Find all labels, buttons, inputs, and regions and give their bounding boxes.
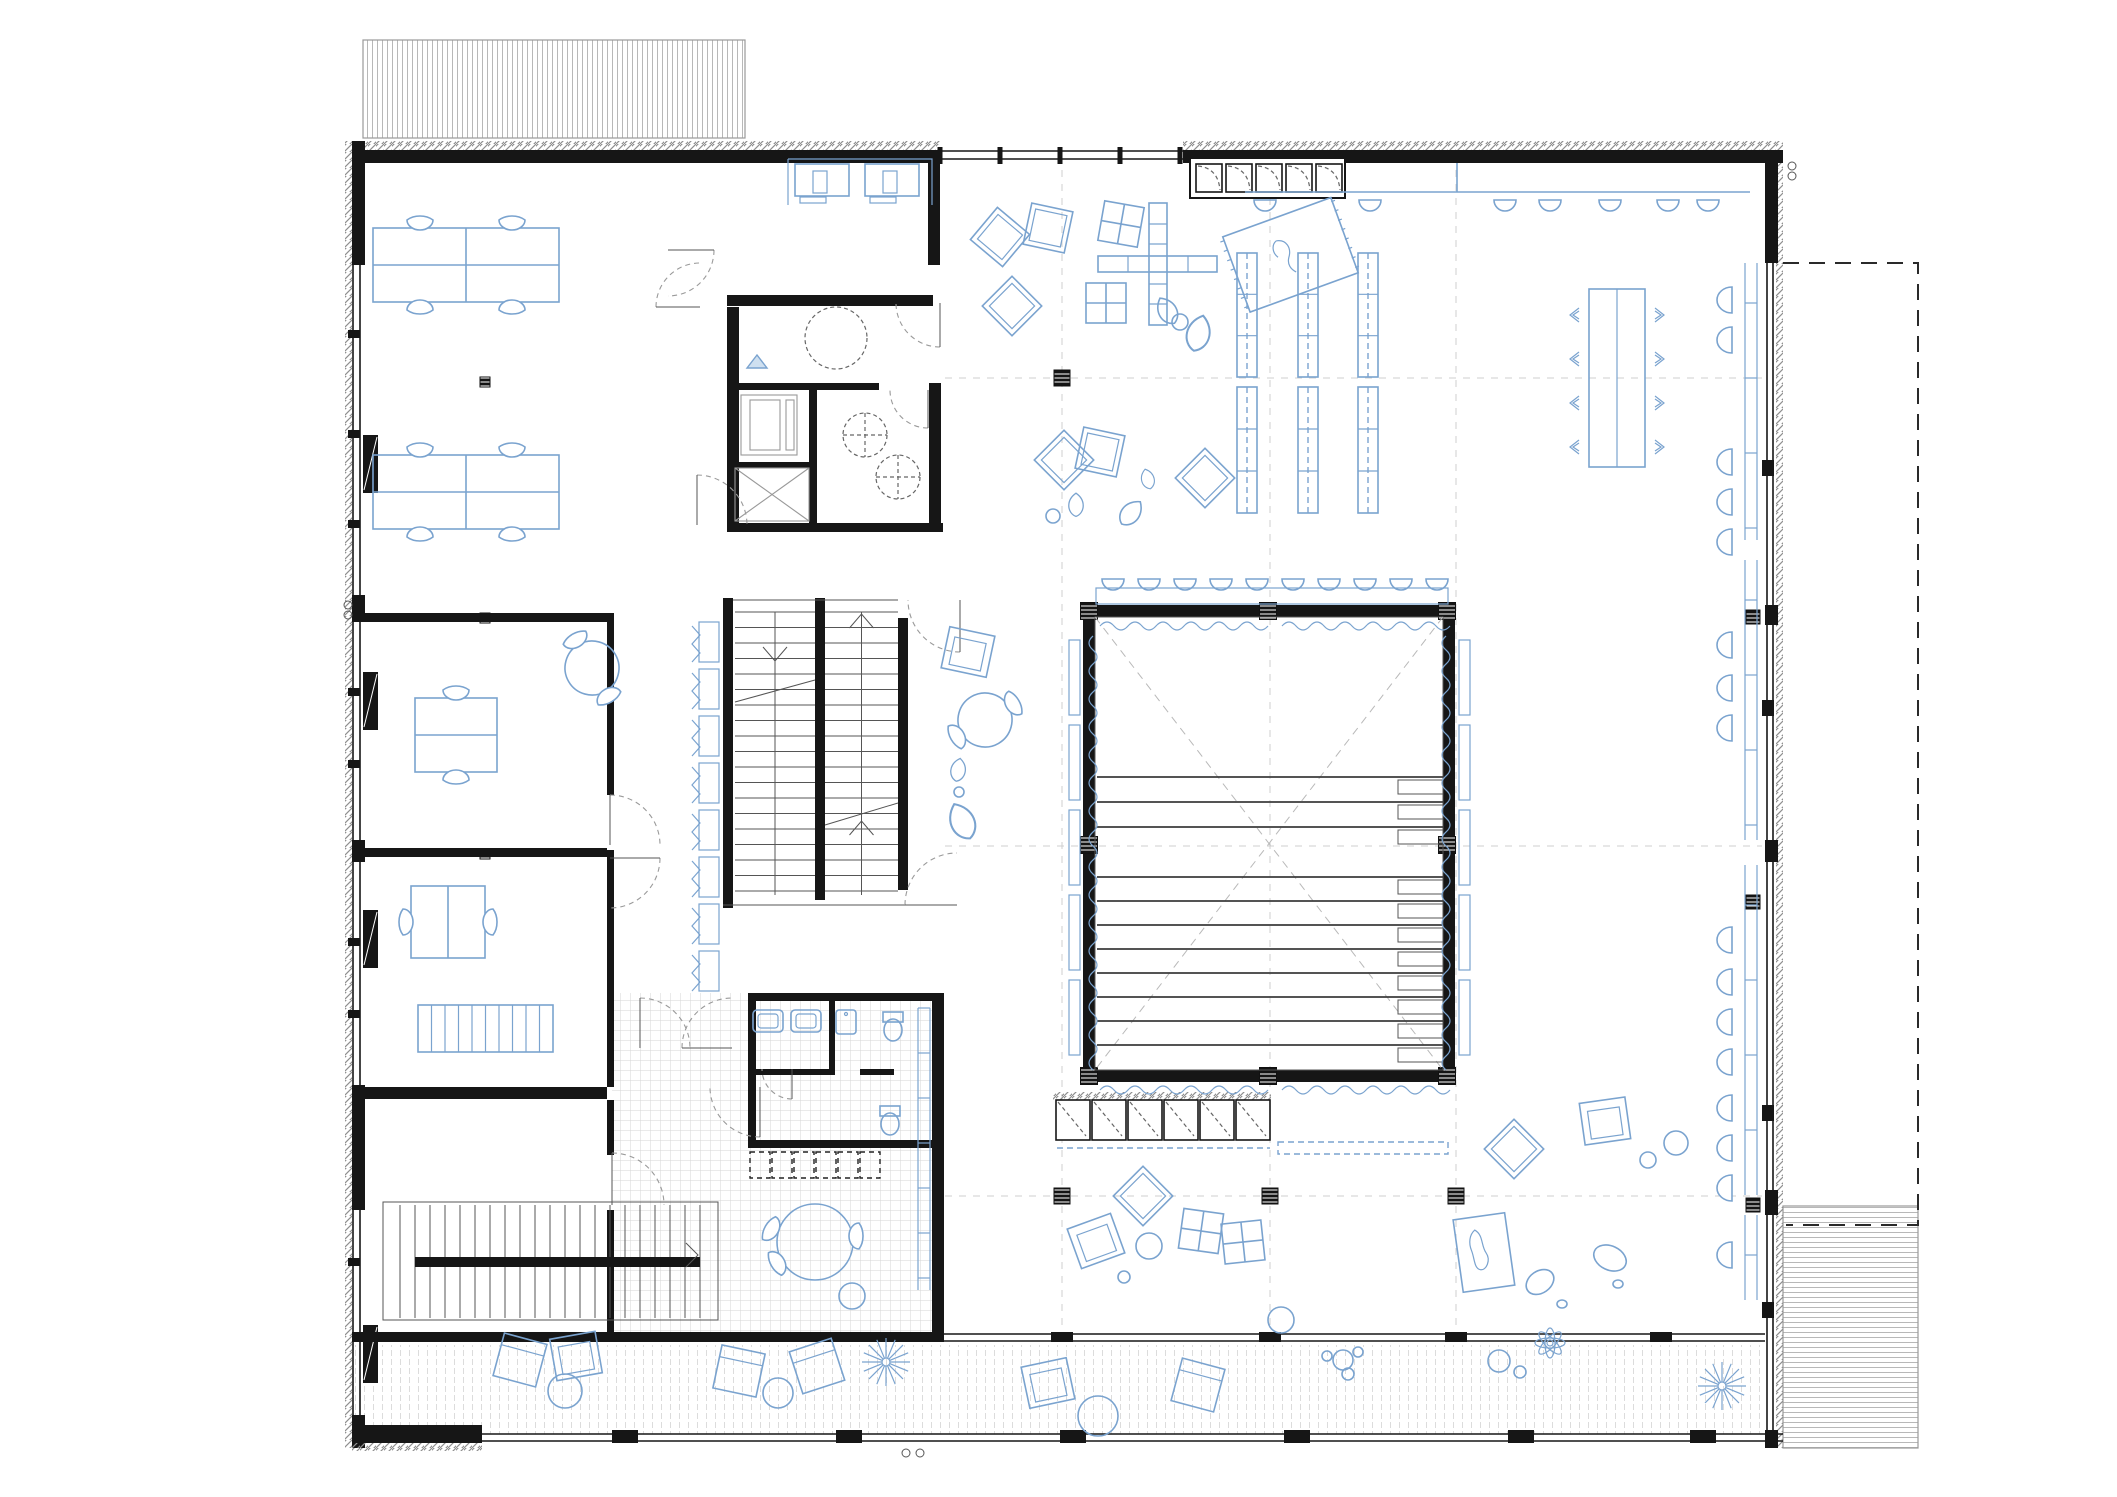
acoustic-panel	[1069, 895, 1080, 970]
zone-meeting-room-b	[363, 858, 613, 1087]
zone-terrace-south	[352, 1345, 1765, 1437]
acoustic-panel	[1459, 725, 1470, 800]
zone-elevator-core	[727, 383, 817, 530]
acoustic-panel	[1459, 895, 1470, 970]
locker	[1226, 164, 1252, 192]
mullion	[1118, 147, 1123, 164]
vent-marker	[1788, 162, 1796, 170]
zone-overlays	[352, 40, 1918, 1448]
zone-auditorium	[1083, 605, 1455, 1082]
mullion	[998, 147, 1003, 164]
zone-wc-accessible	[817, 383, 937, 530]
furniture-armchair	[941, 627, 995, 678]
zone-main-staircase	[723, 598, 908, 908]
locker	[1256, 164, 1282, 192]
mullion	[938, 147, 943, 164]
zone-wc-south	[748, 993, 940, 1148]
locker	[1196, 164, 1222, 192]
door-swing	[896, 303, 940, 347]
acoustic-panel	[1069, 810, 1080, 885]
zone-storage-room-southwest	[363, 1100, 608, 1200]
zone-cafe	[612, 1148, 932, 1332]
dashed-circle-marker	[805, 307, 867, 369]
north-window-band	[938, 147, 1184, 164]
zone-meeting-room-a	[363, 623, 613, 848]
door-swing	[908, 600, 960, 652]
mullion	[1058, 147, 1063, 164]
furniture-blob	[944, 799, 981, 843]
acoustic-panel	[1459, 640, 1470, 715]
mullion	[1178, 147, 1183, 164]
furniture-circle	[954, 787, 964, 797]
acoustic-panel	[1069, 980, 1080, 1055]
zone-computer-room	[712, 163, 940, 303]
zone-lounge-east	[1475, 620, 1765, 1060]
zone-canopy-north	[363, 40, 745, 138]
zone-ramp-southeast	[1783, 1206, 1918, 1448]
zone-library-north	[945, 200, 1765, 600]
floor-plan-page	[0, 0, 2117, 1497]
floor-plan-drawing	[0, 0, 2117, 1497]
zone-central-corridor	[613, 618, 723, 1088]
furniture-round2	[938, 677, 1033, 763]
locker	[1316, 164, 1342, 192]
zone-lounge-south	[945, 1085, 1765, 1335]
acoustic-panel	[1459, 980, 1470, 1055]
triangle-marker	[747, 355, 767, 368]
furniture-blob	[949, 757, 967, 782]
acoustic-panel	[1069, 725, 1080, 800]
vent-marker	[902, 1449, 910, 1457]
zone-plot-boundary-east	[1783, 263, 1918, 1225]
locker	[1286, 164, 1312, 192]
door-swing	[905, 853, 957, 905]
zone-classroom-northwest	[363, 163, 703, 613]
acoustic-panel	[1069, 640, 1080, 715]
acoustic-panel	[1459, 810, 1470, 885]
